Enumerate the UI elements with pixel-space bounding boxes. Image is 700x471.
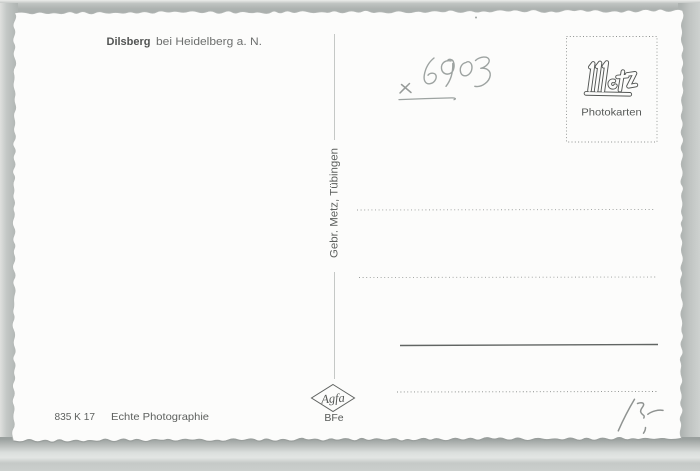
svg-text:Photokarten: Photokarten bbox=[581, 107, 642, 119]
svg-text:Echte Photographie: Echte Photographie bbox=[111, 411, 209, 423]
svg-text:Gebr. Metz, Tübingen: Gebr. Metz, Tübingen bbox=[329, 148, 341, 258]
svg-text:BFe: BFe bbox=[324, 412, 343, 424]
svg-text:bei Heidelberg a. N.: bei Heidelberg a. N. bbox=[156, 36, 262, 48]
svg-text:Agfa: Agfa bbox=[320, 391, 346, 407]
svg-text:835 K 17: 835 K 17 bbox=[55, 411, 96, 423]
svg-text:Dilsberg: Dilsberg bbox=[107, 36, 151, 48]
